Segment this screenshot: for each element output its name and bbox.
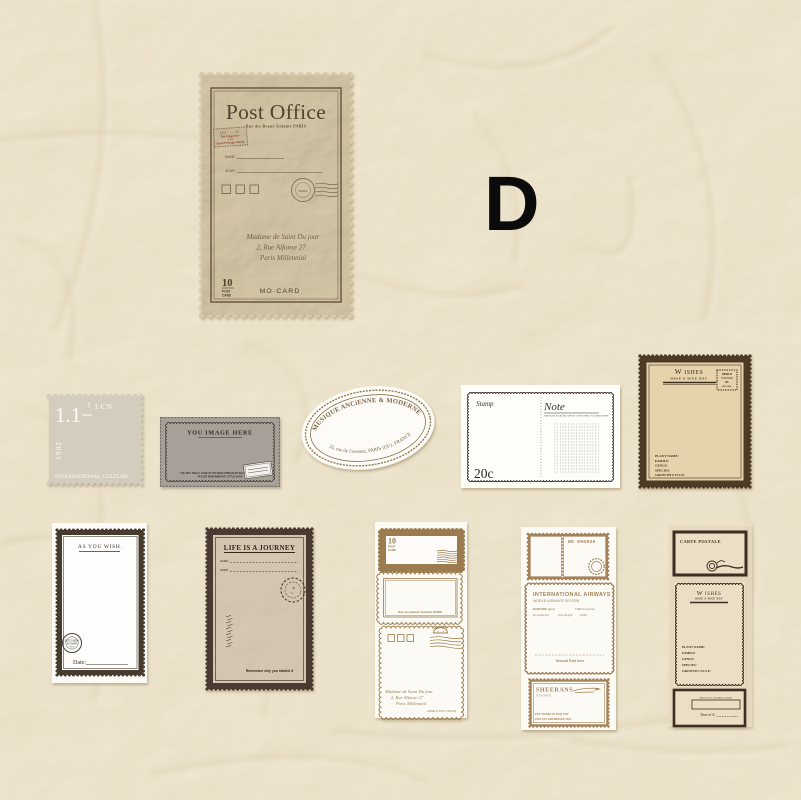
svg-text:AS YOU WISH.: AS YOU WISH. <box>78 544 123 550</box>
svg-text:CARTE POSTALE: CARTE POSTALE <box>680 539 721 544</box>
svg-text:SPECIES:: SPECIES: <box>682 663 697 667</box>
svg-text:1.1−: 1.1− <box>55 403 93 427</box>
svg-text:81: 81 <box>725 380 729 384</box>
svg-text:GROWTH CYCLE:: GROWTH CYCLE: <box>655 473 685 477</box>
svg-text:AIR MAIL: AIR MAIL <box>722 385 732 388</box>
svg-text:FLOWER: FLOWER <box>67 643 78 646</box>
svg-text:INTERNATIONAL AIRWAYS: INTERNATIONAL AIRWAYS <box>533 592 611 598</box>
svg-text:COS ATV ABCDEFGHI TICF: COS ATV ABCDEFGHI TICF <box>535 717 572 721</box>
svg-text:TMB license No.: TMB license No. <box>575 607 596 611</box>
svg-text:SPECIES:: SPECIES: <box>655 468 670 472</box>
svg-text:LCN: LCN <box>95 402 113 411</box>
svg-text:20c: 20c <box>474 466 494 481</box>
svg-text:FAMILY:: FAMILY: <box>682 651 696 655</box>
svg-text:WORLD: WORLD <box>722 372 732 376</box>
svg-text:HAVE A NICE DAY: HAVE A NICE DAY <box>695 598 723 601</box>
svg-text:Rue des Beaux−Enfants PAR: Rue des Beaux−Enfants PARIS <box>398 610 442 614</box>
svg-text:GROWTH CYCLE:: GROWTH CYCLE: <box>682 669 711 673</box>
svg-text:YOU IMAGE HERE: YOU IMAGE HERE <box>187 430 253 437</box>
svg-text:NO 090836: NO 090836 <box>568 539 596 545</box>
svg-text:Paris Millennial: Paris Millennial <box>395 701 427 706</box>
svg-text:GENUS:: GENUS: <box>682 657 694 661</box>
svg-text:Write license and follow envel: Write license and follow envelope <box>700 697 733 700</box>
svg-text:1982: 1982 <box>54 441 63 460</box>
svg-text:PCS TICKET IS OUR TOP: PCS TICKET IS OUR TOP <box>535 712 569 716</box>
svg-text:Unit Weight: Unit Weight <box>558 613 573 617</box>
svg-text:PLANT NAME:: PLANT NAME: <box>682 645 705 649</box>
svg-text:Note: Note <box>543 401 565 413</box>
svg-text:GENUS:: GENUS: <box>655 464 668 468</box>
svg-text:Flight: Flight <box>580 613 587 617</box>
svg-text:WORLD AIRWAYS SYSTEM: WORLD AIRWAYS SYSTEM <box>533 599 579 603</box>
svg-text:Second Fold here: Second Fold here <box>556 659 585 663</box>
svg-text:ANGEL'S POST OFFICE: ANGEL'S POST OFFICE <box>427 709 456 713</box>
svg-text:Madame de Saint Du jour: Madame de Saint Du jour <box>384 689 433 694</box>
svg-text:BARCODE (pcs): BARCODE (pcs) <box>533 607 555 611</box>
svg-text:Time of A :: Time of A : <box>700 713 716 717</box>
svg-text:INTERNATIONAL CULTURE: INTERNATIONAL CULTURE <box>55 474 129 480</box>
svg-text:Date:: Date: <box>73 660 86 666</box>
svg-text:STAMPS: STAMPS <box>536 694 552 698</box>
svg-text:CARD: CARD <box>388 548 396 552</box>
svg-text:PLEASE REMEMBER MY LITTLE SHOP: PLEASE REMEMBER MY LITTLE SHOP <box>198 476 243 479</box>
svg-text:No.Seats No.: No.Seats No. <box>533 613 550 617</box>
svg-text:PLANT NAME:: PLANT NAME: <box>655 454 679 458</box>
svg-text:FAMILY:: FAMILY: <box>655 459 669 463</box>
svg-text:HAVE A NICE DAY AND WRITE DOWN: HAVE A NICE DAY AND WRITE DOWN WHAT YOU … <box>544 415 609 418</box>
svg-text:Stamp: Stamp <box>476 400 494 408</box>
svg-text:W ISHES: W ISHES <box>697 590 722 597</box>
svg-text:HAVE A NICE DAY: HAVE A NICE DAY <box>671 377 708 381</box>
svg-text:P A R: P A R <box>70 646 76 649</box>
